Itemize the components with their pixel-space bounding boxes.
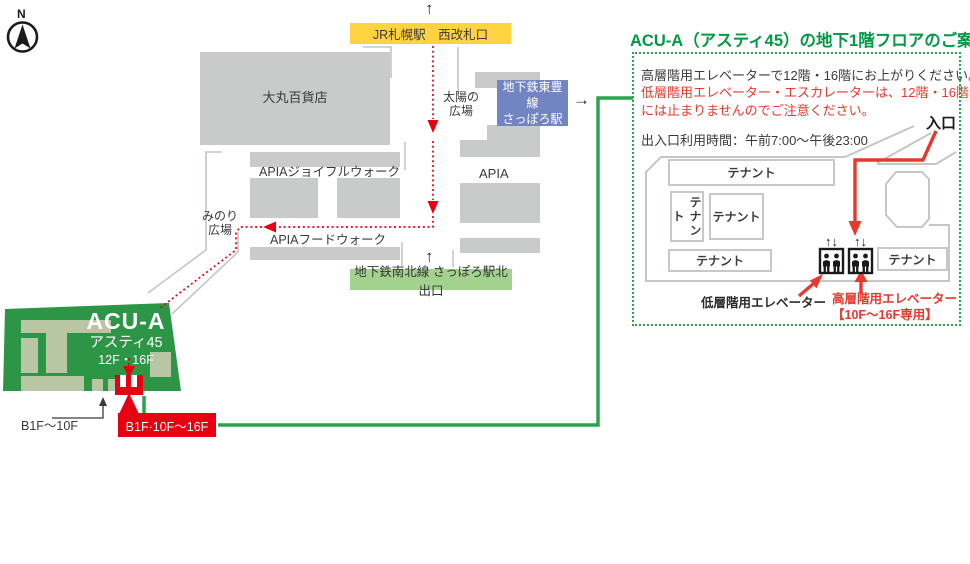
b1f-pointer	[52, 397, 107, 418]
acu-name: ACU-A	[70, 310, 182, 333]
apia-block-3	[460, 183, 540, 223]
apia-label: APIA	[479, 167, 509, 182]
elevator-updown-icon-high: ↑↓	[847, 235, 874, 248]
apia-joyful-label: APIAジョイフルウォーク	[259, 165, 400, 179]
compass-n-label: N	[17, 7, 26, 21]
panel-hours: 出入口利用時間：午前7:00～午後23:00	[641, 130, 868, 149]
namboku-exit-box: 地下鉄南北線 さっぽろ駅北出口	[350, 269, 512, 290]
jr-exit-box: JR札幌駅 西改札口	[350, 23, 511, 44]
panel-note-red: 低層階用エレベーター・エスカレーターは、12階・16階 には止まりませんのでご注…	[641, 84, 969, 120]
tenant-box-right: テナント	[877, 247, 948, 271]
gray-buildings	[200, 52, 540, 260]
panel-note-line1: 高層階用エレベーターで12階・16階にお上がりください。	[641, 65, 970, 84]
minori-plaza-label: みのり 広場	[198, 210, 242, 238]
acu-floors: 12F・16F	[70, 354, 182, 367]
taiyo-plaza-label: 太陽の 広場	[435, 91, 487, 119]
tenant-box-top: テナント	[668, 159, 835, 186]
tenant-box-middle: テナント	[709, 193, 764, 240]
apia-joyful-box2	[337, 178, 400, 218]
toho-station-box: 地下鉄東豊線 さっぽろ駅	[497, 80, 568, 126]
access-map-page: N ↑ JR札幌駅 西改札口 大丸百貨店 太陽の 広場 地下鉄東豊線 さっぽろ駅…	[0, 0, 970, 564]
toho-right-arrow-icon: →	[573, 91, 590, 108]
low-elevator-label: 低層階用エレベーター	[701, 292, 826, 311]
b1f-label: B1F～10F	[21, 419, 78, 433]
entrance-label: 入口	[926, 112, 956, 133]
jr-up-arrow-icon: ↑	[425, 0, 434, 17]
acu-entry-triangle	[119, 393, 139, 414]
apia-block-4	[460, 238, 540, 253]
tenant-box-left: テナント	[670, 191, 704, 242]
apia-block-2	[460, 125, 540, 157]
tenant-box-bottom: テナント	[668, 249, 772, 272]
elevator-updown-icon-low: ↑↓	[818, 235, 845, 248]
daimaru-label: 大丸百貨店	[200, 91, 390, 106]
apia-food-label: APIAフードウォーク	[270, 233, 386, 247]
compass-icon	[8, 23, 37, 52]
panel-title: ACU-A（アスティ45）の地下1階フロアのご案内	[630, 27, 970, 51]
acu-building-label: ACU-A アスティ45 12F・16F	[70, 310, 182, 366]
acu-subname: アスティ45	[70, 336, 182, 351]
apia-food-bar	[250, 247, 400, 260]
elevator-bank-box: B1F·10F～16F	[118, 413, 216, 437]
high-elevator-label: 高層階用エレベーター 【10F～16F専用】	[832, 292, 957, 323]
apia-joyful-box1	[250, 178, 318, 218]
